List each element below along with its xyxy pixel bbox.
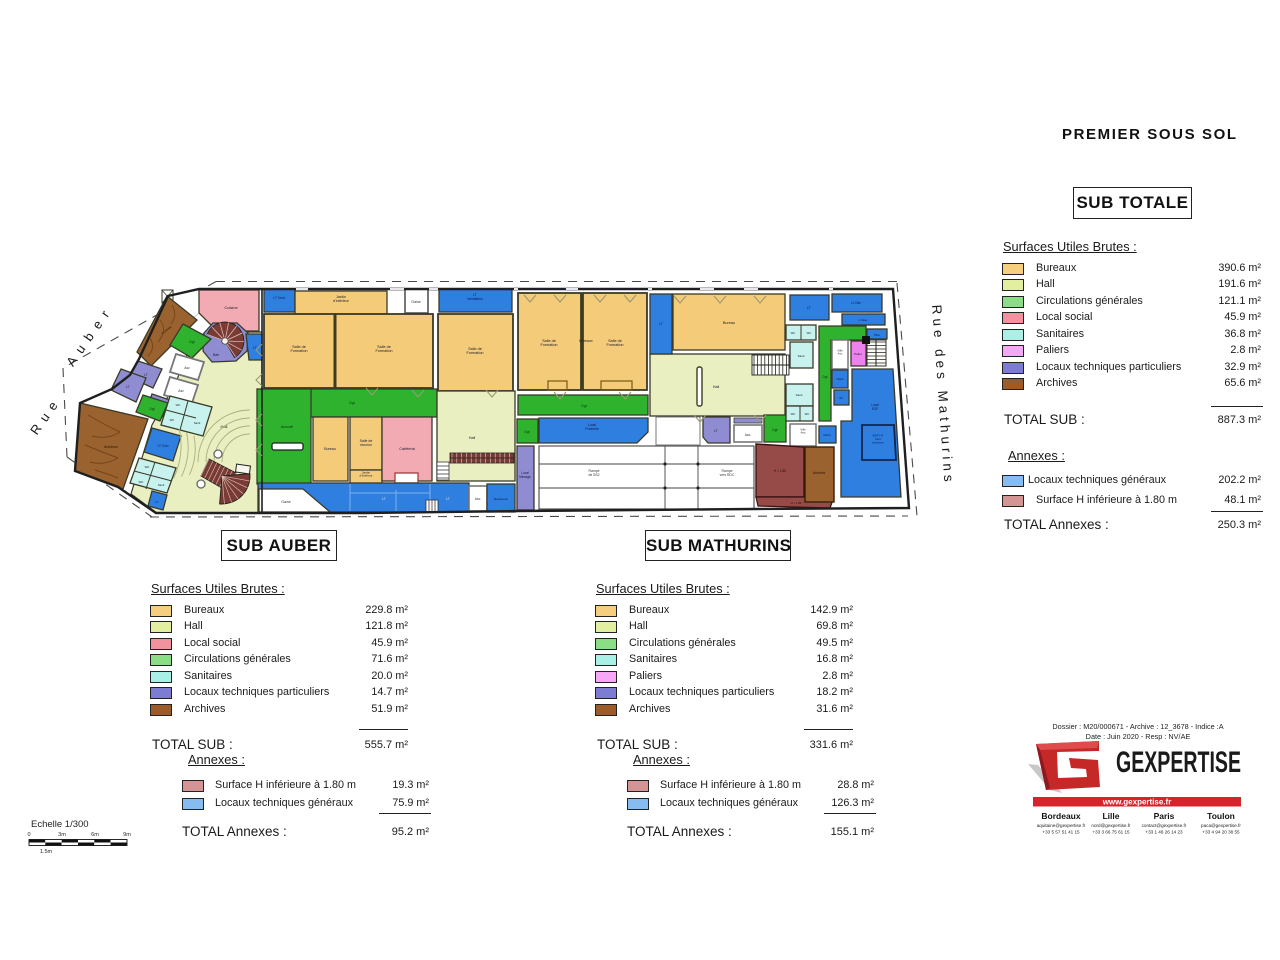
svg-text:LT: LT bbox=[659, 322, 663, 326]
svg-text:LT: LT bbox=[144, 373, 148, 377]
svg-text:Sanit: Sanit bbox=[194, 421, 201, 425]
svg-text:Formation: Formation bbox=[466, 351, 483, 355]
svg-text:Archives: Archives bbox=[813, 471, 826, 475]
svg-text:Bah: Bah bbox=[213, 353, 219, 357]
svg-text:Dgt: Dgt bbox=[189, 340, 194, 344]
svg-text:WC: WC bbox=[170, 418, 175, 422]
svg-text:Formation: Formation bbox=[290, 349, 307, 353]
svg-text:Asc: Asc bbox=[178, 389, 184, 393]
svg-text:annexes: annexes bbox=[872, 440, 884, 444]
svg-text:Mach: Mach bbox=[823, 433, 830, 437]
svg-text:LT: LT bbox=[714, 429, 718, 433]
svg-text:WC: WC bbox=[807, 331, 812, 335]
svg-text:WC: WC bbox=[176, 403, 181, 407]
svg-text:0: 0 bbox=[27, 832, 30, 838]
svg-text:Cuisine: Cuisine bbox=[224, 305, 238, 310]
svg-text:WC: WC bbox=[139, 480, 144, 484]
svg-text:Dgt: Dgt bbox=[772, 428, 777, 432]
svg-text:d'intérieur: d'intérieur bbox=[359, 474, 372, 478]
svg-text:LT: LT bbox=[446, 497, 450, 501]
svg-text:LT: LT bbox=[126, 385, 130, 389]
svg-text:Asc: Asc bbox=[184, 366, 190, 370]
svg-text:Asc.: Asc. bbox=[745, 433, 751, 437]
svg-text:Bureau: Bureau bbox=[723, 321, 735, 325]
svg-text:Mach: Mach bbox=[836, 377, 843, 381]
svg-text:LT: LT bbox=[155, 500, 158, 504]
svg-text:Asc: Asc bbox=[837, 352, 843, 356]
svg-text:Sanit: Sanit bbox=[798, 354, 805, 358]
svg-text:Dgt: Dgt bbox=[823, 375, 828, 379]
svg-text:Xb: Xb bbox=[839, 396, 843, 400]
svg-text:Bureau: Bureau bbox=[324, 447, 336, 451]
svg-text:Dgt: Dgt bbox=[150, 407, 155, 411]
svg-text:réunion: réunion bbox=[360, 443, 372, 447]
svg-text:WC: WC bbox=[145, 465, 150, 469]
svg-text:Dgt: Dgt bbox=[349, 401, 354, 405]
svg-text:WC: WC bbox=[805, 412, 810, 416]
svg-text:9m: 9m bbox=[123, 832, 131, 838]
svg-text:Hall: Hall bbox=[469, 436, 476, 440]
svg-text:Gaine: Gaine bbox=[411, 300, 421, 304]
svg-text:WC: WC bbox=[791, 412, 796, 416]
svg-text:A u b e r: A u b e r bbox=[63, 306, 113, 369]
svg-text:Sanit: Sanit bbox=[158, 483, 165, 487]
svg-text:de SS2: de SS2 bbox=[588, 473, 599, 477]
svg-text:Accueil: Accueil bbox=[281, 425, 293, 429]
svg-text:Asc: Asc bbox=[800, 431, 806, 435]
svg-text:H < 1.80: H < 1.80 bbox=[791, 501, 802, 505]
svg-text:Hall: Hall bbox=[713, 385, 720, 389]
svg-text:Formation: Formation bbox=[540, 343, 557, 347]
svg-text:LT Vent: LT Vent bbox=[273, 296, 284, 300]
svg-text:LT: LT bbox=[382, 497, 386, 501]
svg-text:Lt Eau: Lt Eau bbox=[859, 318, 868, 322]
svg-text:Dgt: Dgt bbox=[581, 404, 586, 408]
svg-text:Archives: Archives bbox=[104, 445, 118, 449]
svg-text:LT: LT bbox=[807, 306, 811, 310]
svg-text:Lt Clim: Lt Clim bbox=[851, 301, 861, 305]
svg-text:WC: WC bbox=[791, 331, 796, 335]
svg-text:Bureaux: Bureaux bbox=[579, 339, 593, 343]
svg-text:6m: 6m bbox=[91, 832, 99, 838]
svg-text:3m: 3m bbox=[58, 832, 66, 838]
svg-text:LT Clim: LT Clim bbox=[157, 444, 168, 448]
svg-text:Machinerie: Machinerie bbox=[494, 497, 509, 501]
svg-text:H < 1.80: H < 1.80 bbox=[774, 469, 786, 473]
svg-text:EDF: EDF bbox=[872, 407, 878, 411]
svg-text:d'intérieur: d'intérieur bbox=[333, 299, 349, 303]
svg-text:Palier: Palier bbox=[854, 352, 862, 356]
svg-text:Formation: Formation bbox=[606, 343, 623, 347]
svg-text:Asc.: Asc. bbox=[475, 497, 481, 501]
svg-text:Dgt: Dgt bbox=[524, 430, 529, 434]
svg-text:Echelle 1/300: Echelle 1/300 bbox=[31, 819, 89, 830]
svg-text:Plbe: Plbe bbox=[874, 333, 880, 337]
svg-text:R u e: R u e bbox=[27, 397, 61, 437]
svg-text:Poubelle: Poubelle bbox=[585, 427, 598, 431]
svg-text:Ventilation: Ventilation bbox=[467, 297, 483, 301]
svg-text:Formation: Formation bbox=[375, 349, 392, 353]
svg-text:Gaine: Gaine bbox=[281, 500, 291, 504]
svg-text:1.5m: 1.5m bbox=[40, 849, 53, 855]
svg-text:Sanit: Sanit bbox=[796, 393, 803, 397]
svg-text:Cafétéria: Cafétéria bbox=[399, 447, 415, 451]
svg-text:Ménage: Ménage bbox=[519, 475, 531, 479]
svg-text:vers RDC: vers RDC bbox=[720, 473, 735, 477]
svg-text:Rue des Mathurins: Rue des Mathurins bbox=[929, 304, 957, 486]
